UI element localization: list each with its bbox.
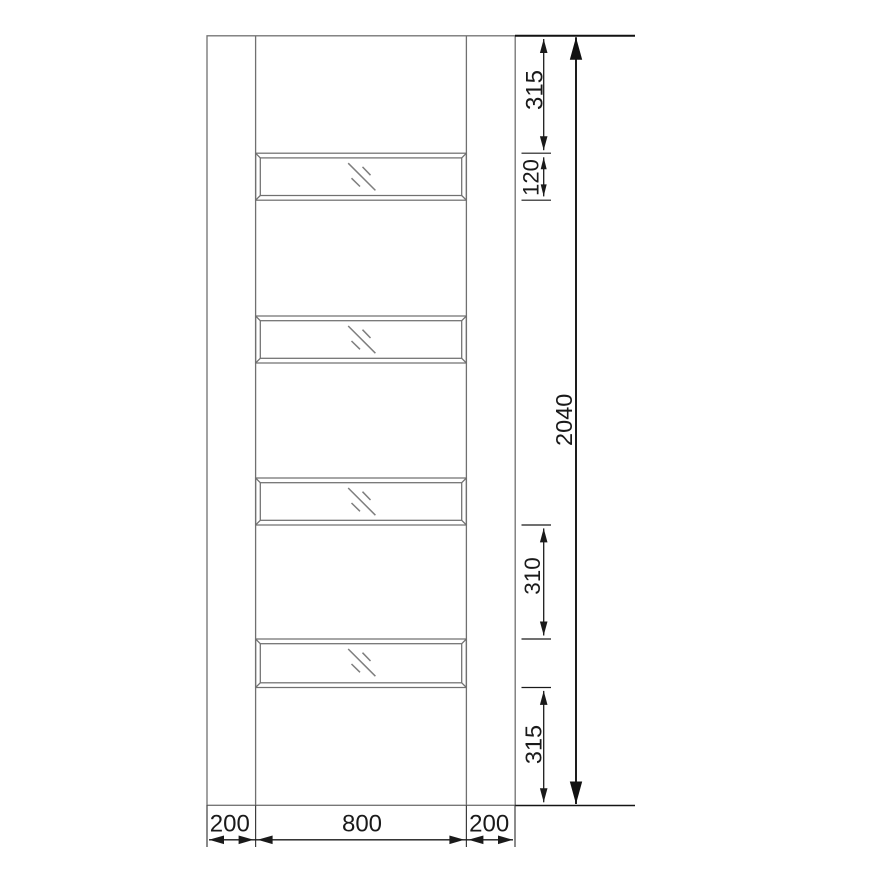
svg-text:315: 315 [521, 725, 547, 764]
svg-text:200: 200 [210, 811, 250, 838]
svg-text:800: 800 [342, 811, 382, 838]
svg-text:120: 120 [519, 159, 544, 196]
svg-text:310: 310 [520, 557, 545, 595]
svg-text:2040: 2040 [551, 394, 577, 446]
svg-text:200: 200 [469, 811, 509, 838]
svg-text:315: 315 [521, 70, 548, 110]
